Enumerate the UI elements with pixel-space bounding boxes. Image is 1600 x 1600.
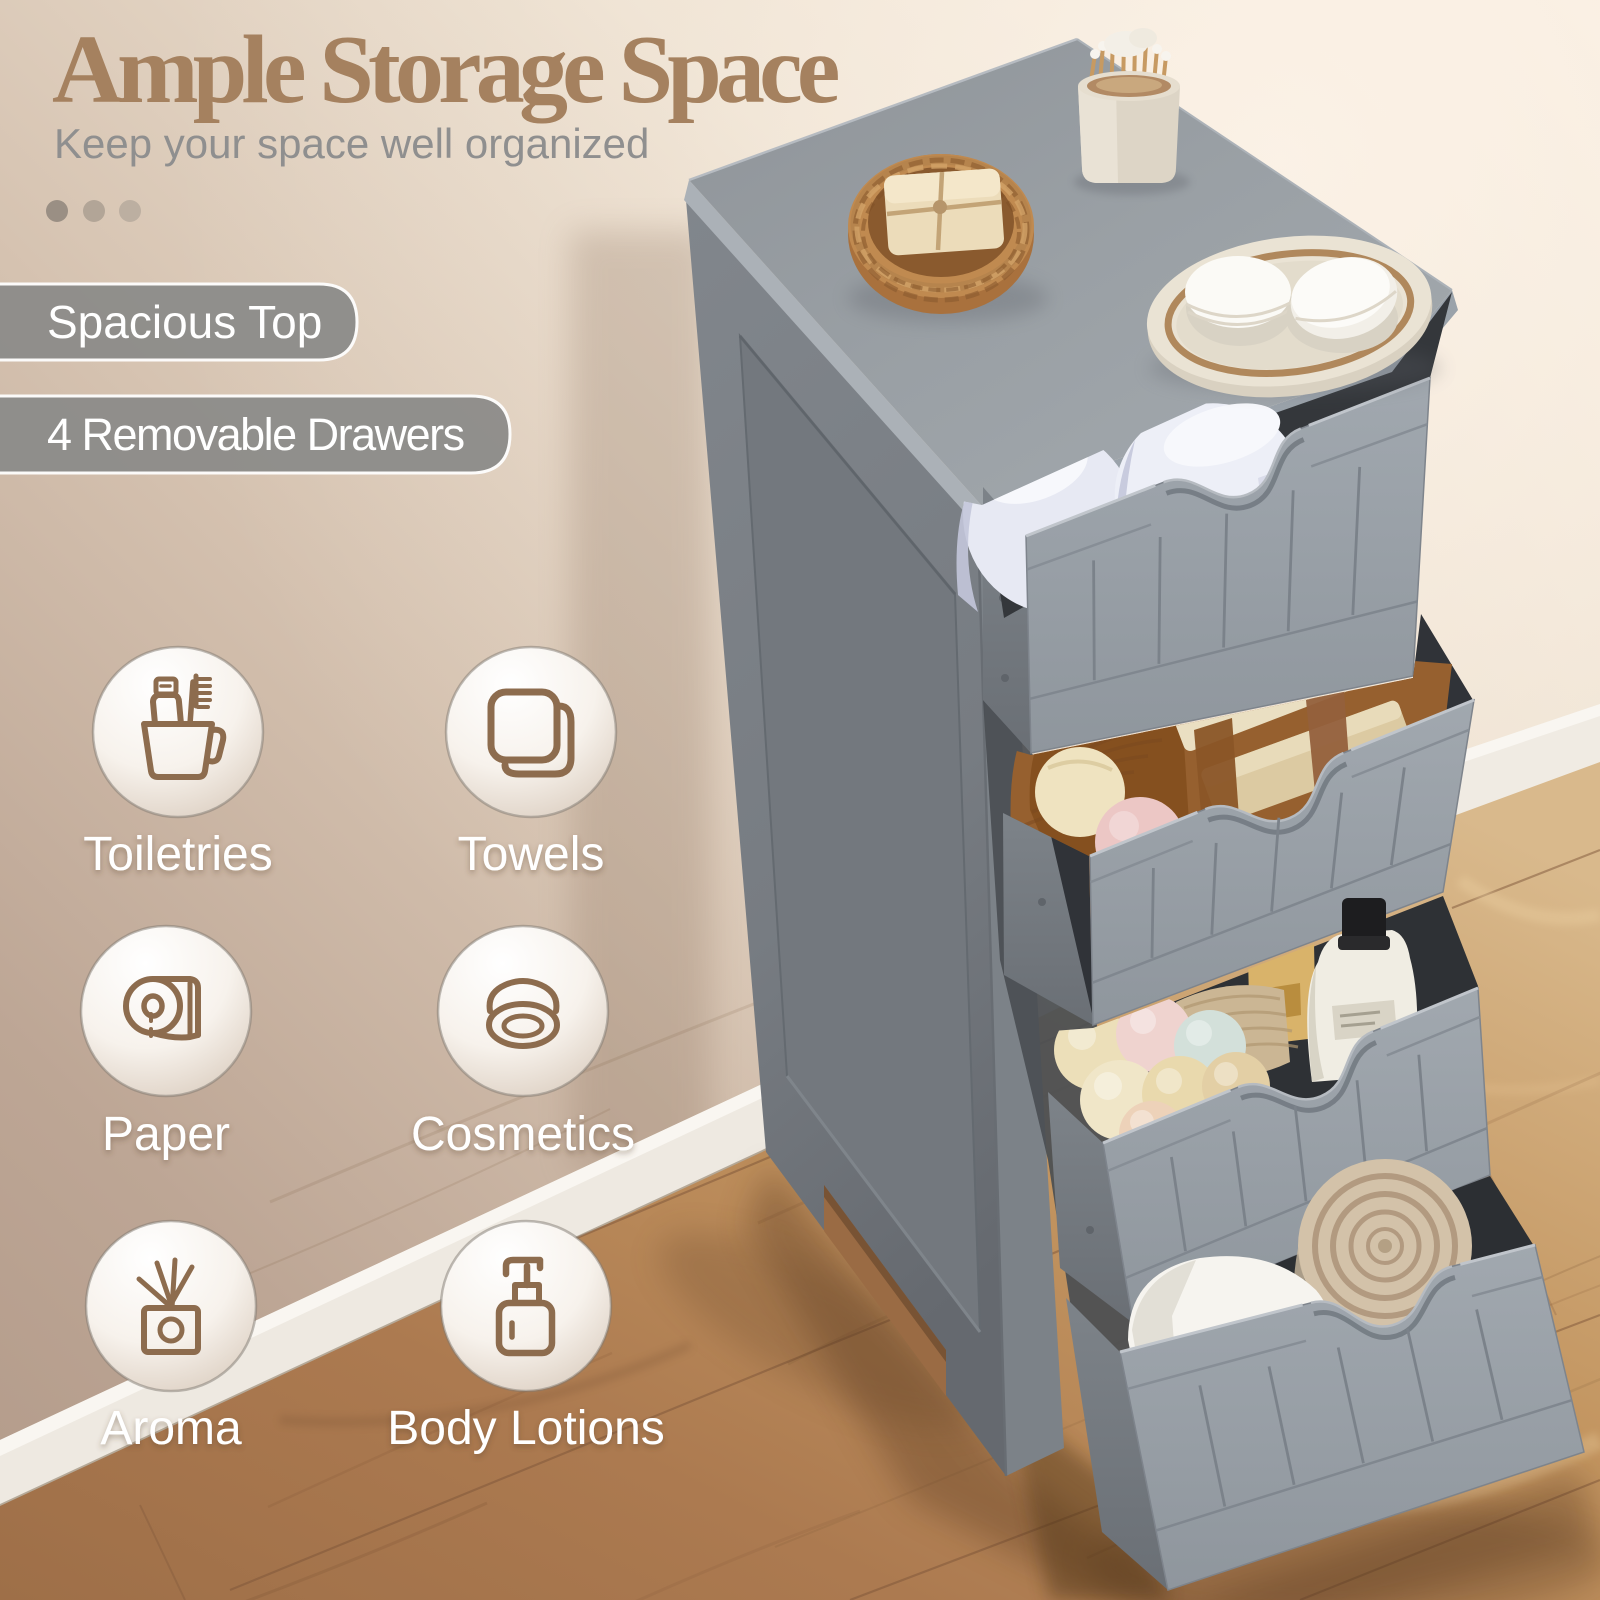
- svg-text:Ample Storage Space: Ample Storage Space: [52, 16, 838, 124]
- svg-text:4 Removable Drawers: 4 Removable Drawers: [47, 409, 464, 460]
- svg-text:Cosmetics: Cosmetics: [411, 1108, 635, 1161]
- svg-text:Toiletries: Toiletries: [83, 828, 272, 881]
- svg-text:Aroma: Aroma: [100, 1402, 242, 1455]
- svg-text:Towels: Towels: [458, 828, 605, 881]
- svg-text:Body Lotions: Body Lotions: [387, 1402, 665, 1455]
- svg-text:Paper: Paper: [102, 1108, 230, 1161]
- svg-text:Keep your space well organized: Keep your space well organized: [54, 120, 649, 167]
- svg-text:Spacious Top: Spacious Top: [47, 296, 322, 348]
